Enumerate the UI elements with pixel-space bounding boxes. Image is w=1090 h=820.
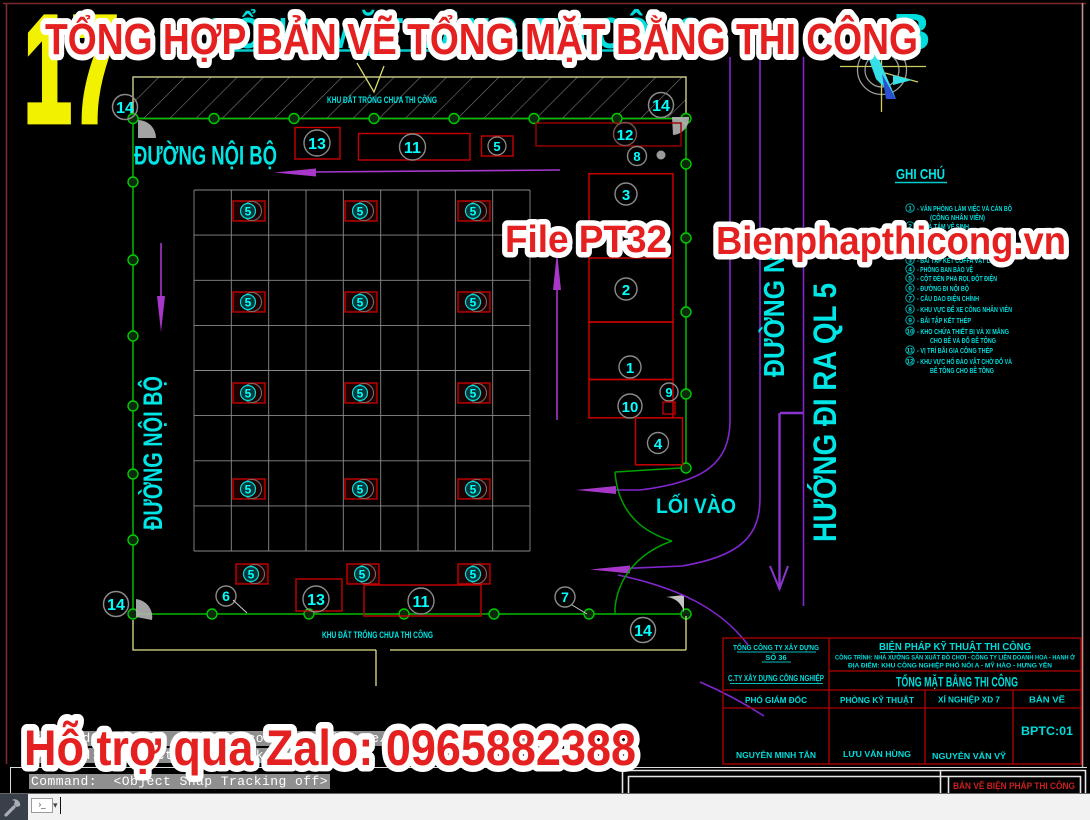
svg-text:14: 14 (107, 597, 125, 614)
svg-text:5: 5 (470, 483, 477, 497)
svg-text:11: 11 (413, 594, 430, 611)
svg-text:12: 12 (617, 127, 634, 144)
svg-text:5: 5 (248, 568, 255, 582)
svg-text:6: 6 (222, 588, 230, 604)
svg-text:LỐI VÀO: LỐI VÀO (656, 494, 736, 518)
svg-text:ĐƯỜNG NỘI BỘ: ĐƯỜNG NỘI BỘ (137, 376, 168, 530)
svg-text:BẢN VẼ: BẢN VẼ (1029, 694, 1065, 705)
svg-text:1: 1 (908, 206, 912, 213)
svg-text:BÊ TÔNG CHO BÊ TÔNG: BÊ TÔNG CHO BÊ TÔNG (930, 366, 994, 375)
svg-text:14: 14 (634, 623, 652, 640)
svg-text:10: 10 (622, 399, 639, 416)
svg-text:HƯỚNG ĐI RA QL 5: HƯỚNG ĐI RA QL 5 (807, 283, 843, 542)
svg-text:5: 5 (357, 387, 364, 401)
svg-text:TỔNG CÔNG TY XÂY DỰNG: TỔNG CÔNG TY XÂY DỰNG (733, 643, 819, 652)
svg-text:4: 4 (908, 267, 912, 274)
svg-text:CHO BỂ VÀ ĐỔ BÊ TÔNG: CHO BỂ VÀ ĐỔ BÊ TÔNG (930, 336, 996, 345)
svg-text:3: 3 (622, 187, 630, 204)
svg-text:8: 8 (633, 149, 640, 164)
svg-text:KHU ĐẤT TRỐNG CHƯA THI CÔNG: KHU ĐẤT TRỐNG CHƯA THI CÔNG (327, 94, 437, 105)
svg-text:5: 5 (357, 483, 364, 497)
svg-text:13: 13 (307, 592, 325, 609)
svg-text:5: 5 (245, 205, 252, 219)
svg-text:- KHU VỰC ĐỂ XE CÔNG NHÂN VIÊN: - KHU VỰC ĐỂ XE CÔNG NHÂN VIÊN (917, 305, 1012, 314)
svg-text:5: 5 (357, 205, 364, 219)
svg-text:- CỘT ĐÈN PHA RỌI, ĐỘT ĐIỆN: - CỘT ĐÈN PHA RỌI, ĐỘT ĐIỆN (917, 274, 997, 283)
svg-text:XÍ NGHIỆP XD 7: XÍ NGHIỆP XD 7 (938, 696, 1001, 705)
svg-text:BIỆN PHÁP KỸ THUẬT THI CÔNG: BIỆN PHÁP KỸ THUẬT THI CÔNG (879, 640, 1031, 653)
svg-text:9: 9 (665, 385, 672, 400)
svg-text:5: 5 (470, 568, 477, 582)
svg-text:- KHU VỰC HỐ ĐÀO VẬT CHỜ ĐỔ VÀ: - KHU VỰC HỐ ĐÀO VẬT CHỜ ĐỔ VÀ (917, 356, 1012, 366)
svg-text:2: 2 (622, 282, 630, 299)
svg-text:NGUYỄN MINH TÂN: NGUYỄN MINH TÂN (736, 749, 816, 760)
svg-text:LƯU VĂN HÙNG: LƯU VĂN HÙNG (843, 748, 911, 759)
svg-text:11: 11 (907, 348, 914, 355)
svg-text:5: 5 (470, 296, 477, 310)
svg-text:1: 1 (626, 360, 634, 377)
svg-text:6: 6 (908, 286, 912, 293)
svg-text:PHÓ GIÁM ĐỐC: PHÓ GIÁM ĐỐC (745, 694, 807, 705)
svg-text:14: 14 (116, 100, 134, 117)
svg-text:5: 5 (470, 387, 477, 401)
svg-text:File PT32: File PT32 (505, 219, 667, 261)
svg-text:Bienphapthicong.vn: Bienphapthicong.vn (716, 220, 1066, 263)
svg-text:- ĐƯỜNG ĐI NỘI BỘ: - ĐƯỜNG ĐI NỘI BỘ (917, 284, 969, 293)
svg-text:14: 14 (652, 98, 670, 115)
svg-text:KHU ĐẤT TRỐNG CHƯA THI CÔNG: KHU ĐẤT TRỐNG CHƯA THI CÔNG (322, 629, 433, 640)
svg-text:13: 13 (308, 136, 326, 153)
svg-text:5: 5 (245, 296, 252, 310)
svg-text:BẢN VẼ BIỆN PHÁP THI CÔNG: BẢN VẼ BIỆN PHÁP THI CÔNG (953, 780, 1075, 792)
svg-text:5: 5 (245, 387, 252, 401)
svg-text:11: 11 (404, 140, 421, 157)
svg-text:GHI CHÚ: GHI CHÚ (896, 165, 945, 183)
svg-text:9: 9 (908, 318, 912, 325)
svg-text:5: 5 (359, 568, 366, 582)
svg-text:- KHO CHỨA THIẾT BỊ VÀ XI MĂNG: - KHO CHỨA THIẾT BỊ VÀ XI MĂNG (917, 326, 1009, 336)
svg-text:12: 12 (906, 359, 914, 366)
svg-text:NGUYỄN VĂN VỸ: NGUYỄN VĂN VỸ (932, 750, 1006, 761)
svg-text:8: 8 (908, 307, 912, 314)
svg-text:5: 5 (245, 483, 252, 497)
svg-text:7: 7 (908, 296, 912, 303)
svg-text:5: 5 (357, 296, 364, 310)
svg-text:Hỗ trợ qua Zalo: 0965882388: Hỗ trợ qua Zalo: 0965882388 (24, 720, 636, 776)
svg-text:- CẦU DAO ĐIỆN CHÍNH: - CẦU DAO ĐIỆN CHÍNH (917, 293, 979, 303)
svg-text:ĐƯỜNG NỘI BỘ: ĐƯỜNG NỘI BỘ (134, 140, 277, 171)
svg-text:- BÃI TẬP KẾT THÉP: - BÃI TẬP KẾT THÉP (917, 315, 971, 325)
svg-text:SỐ 36: SỐ 36 (765, 652, 786, 662)
svg-text:7: 7 (561, 589, 569, 605)
svg-text:5: 5 (470, 205, 477, 219)
svg-text:ĐƯỜNG N: ĐƯỜNG N (757, 255, 791, 377)
svg-text:C.TY XÂY DỰNG CÔNG NGHIỆP: C.TY XÂY DỰNG CÔNG NGHIỆP (728, 674, 824, 683)
svg-text:TỔNG HỢP BẢN VẼ TỔNG MẶT BẰNG: TỔNG HỢP BẢN VẼ TỔNG MẶT BẰNG THI CÔNG (45, 13, 918, 64)
svg-text:10: 10 (906, 329, 914, 336)
svg-text:- VỊ TRÍ BÃI GIA CÔNG THÉP: - VỊ TRÍ BÃI GIA CÔNG THÉP (917, 346, 993, 355)
svg-text:PHÒNG KỸ THUẬT: PHÒNG KỸ THUẬT (840, 694, 915, 705)
svg-text:TỔNG MẶT BẰNG THI CÔNG: TỔNG MẶT BẰNG THI CÔNG (896, 673, 1018, 690)
svg-text:BPTC:01: BPTC:01 (1021, 726, 1074, 738)
svg-text:- VĂN PHÒNG LÀM VIỆC VÀ CÁN BỘ: - VĂN PHÒNG LÀM VIỆC VÀ CÁN BỘ (917, 204, 1012, 213)
svg-text:- PHÒNG BAN BẢO VỆ: - PHÒNG BAN BẢO VỆ (917, 265, 973, 274)
svg-text:5: 5 (908, 276, 912, 283)
svg-text:5: 5 (493, 139, 500, 154)
svg-text:4: 4 (654, 436, 663, 453)
